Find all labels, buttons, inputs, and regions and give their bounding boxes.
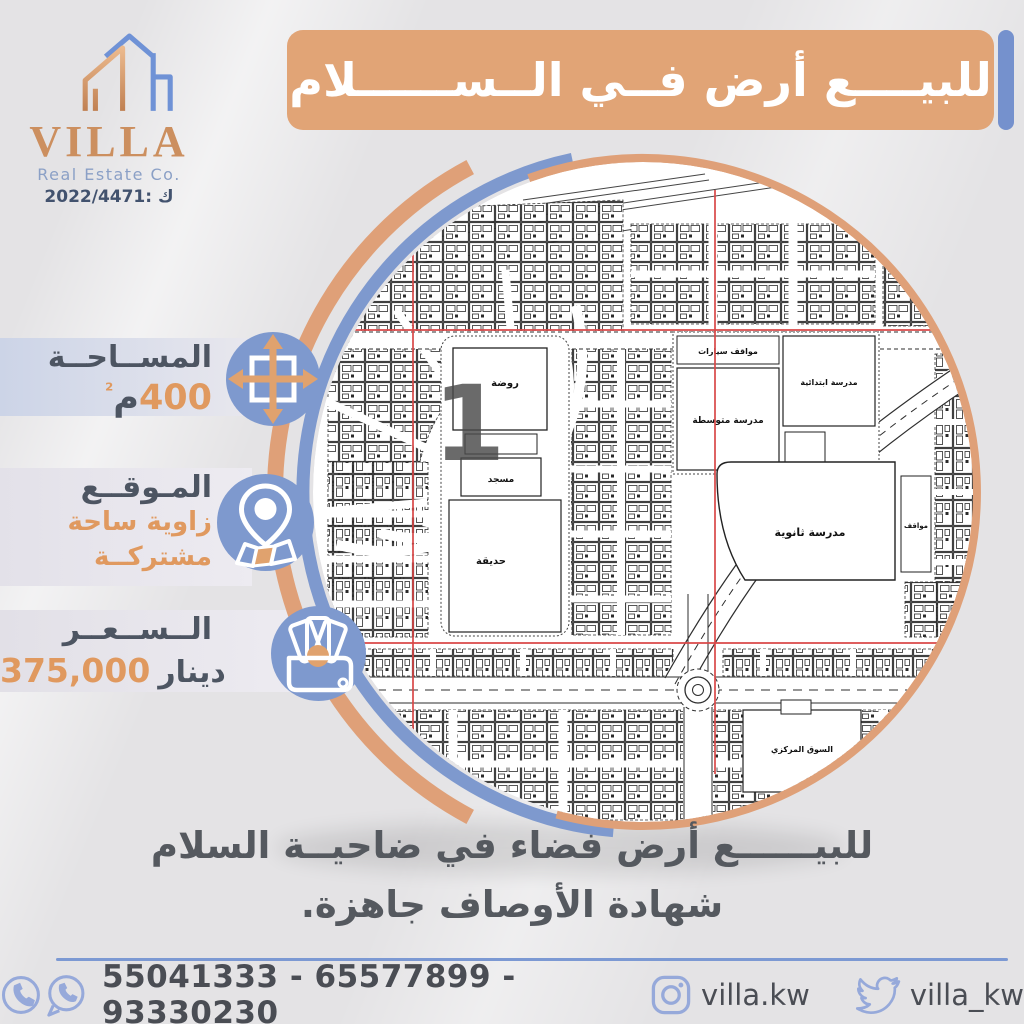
map-label-car-parking: مواقف سيارات [698, 347, 758, 356]
phone-numbers[interactable]: 55041333 - 65577899 - 93330230 [102, 959, 615, 1024]
twitter-icon [850, 974, 902, 1016]
area-move-icon [226, 332, 320, 426]
twitter-handle[interactable]: villa_kw [910, 978, 1024, 1012]
map-label-high-school: مدرسة ثانوية [775, 526, 846, 539]
price-icon-circle [271, 606, 366, 701]
phone-whatsapp-icon [0, 969, 96, 1021]
map-label-elementary-school: مدرسة ابتدائية [800, 378, 857, 387]
map-pin-icon [217, 474, 314, 571]
footer: 55041333 - 65577899 - 93330230 villa.kw … [0, 966, 1024, 1024]
location-icon-circle [217, 474, 314, 571]
money-wallet-icon [271, 606, 366, 701]
area-icon-circle [226, 332, 320, 426]
real-estate-poster: روضة مسجد حديقة مواقف سيارات مدرسة متوسط… [0, 0, 1024, 1024]
central-market-zone: السوق المركزي [743, 700, 861, 792]
map-label-park: حديقة [476, 556, 506, 567]
map-label-parking: مواقف [904, 522, 928, 530]
instagram-handle[interactable]: villa.kw [701, 978, 810, 1012]
roundabout [677, 669, 719, 711]
map-label-middle-school: مدرسة متوسطة [692, 416, 763, 426]
map-label-central-market: السوق المركزي [771, 745, 833, 754]
tagline-line2: شهادة الأوصاف جاهزة. [0, 875, 1024, 934]
schools-zone: مواقف سيارات مدرسة متوسطة مدرسة ابتدائية [673, 332, 879, 474]
tagline-line1: للبيــــــع أرض فضاء في ضاحيــة السلام [0, 816, 1024, 875]
instagram-icon [649, 973, 693, 1017]
plot-marker: 1 [433, 363, 505, 485]
tagline: للبيــــــع أرض فضاء في ضاحيــة السلام ش… [0, 816, 1024, 934]
